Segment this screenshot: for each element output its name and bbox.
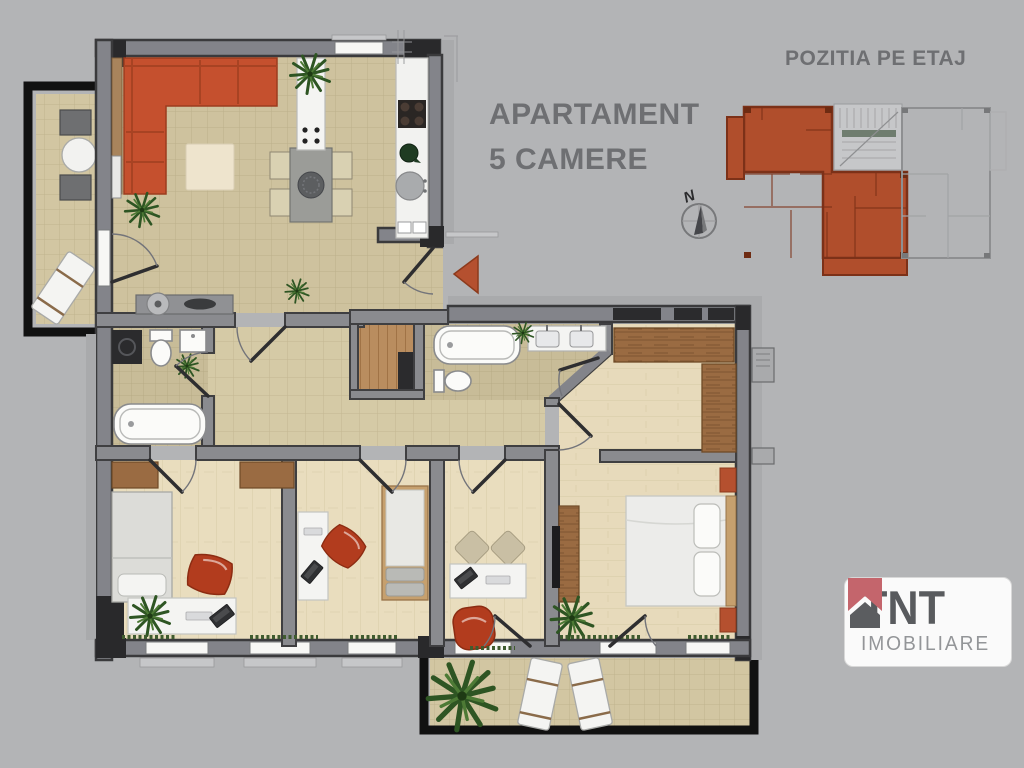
kitchen-counter: [396, 58, 428, 238]
minimap-neighbor-unit: [902, 108, 1006, 258]
toilet: [150, 330, 172, 366]
bed: [112, 492, 172, 602]
balcony-chair: [60, 110, 91, 135]
title-line-2: 5 CAMERE: [489, 137, 700, 182]
desk: [298, 512, 328, 600]
balcony-door-opening: [98, 230, 110, 286]
rug: [186, 144, 234, 190]
dressing-window: [708, 308, 734, 320]
closet-appliance: [398, 352, 415, 392]
wardrobe: [702, 364, 736, 452]
floor-position-map: [727, 104, 1006, 275]
desk: [450, 564, 526, 598]
desk: [128, 597, 236, 636]
balcony-chair: [60, 175, 91, 200]
balcony-table: [62, 138, 96, 172]
kettle: [400, 144, 418, 162]
pouf: [451, 604, 496, 651]
entrance-marker-icon: [454, 256, 478, 293]
kitchen-window: [335, 42, 383, 54]
dressing-window: [674, 308, 702, 320]
dressing-window: [613, 308, 661, 320]
logo-subtitle-text: IMOBILIARE: [861, 633, 993, 656]
stairwell: [834, 104, 902, 170]
compass: N: [681, 186, 716, 238]
bathroom1-sink: [180, 330, 206, 352]
bed: [382, 486, 428, 600]
kitchen-sink: [396, 172, 424, 200]
agency-logo: TNT IMOBILIARE: [844, 577, 1012, 667]
washing-machine: [112, 330, 142, 364]
bathtub: [114, 404, 206, 444]
master-window: [686, 642, 730, 654]
tv-cabinet: [559, 506, 579, 602]
nightstand: [720, 608, 736, 632]
bedroom2-window: [250, 642, 310, 654]
tv: [112, 156, 121, 198]
toilet: [434, 370, 471, 392]
bedroom1-window: [146, 642, 208, 654]
master-balcony-door: [600, 642, 656, 654]
balcony-left: [28, 86, 100, 332]
title-line-1: APARTAMENT: [489, 92, 700, 137]
wardrobe: [614, 328, 734, 362]
tv: [552, 526, 560, 588]
balcony-bottom: [424, 652, 754, 731]
bathtub: [434, 326, 520, 364]
page-title: APARTAMENT 5 CAMERE: [489, 92, 700, 182]
minimap-label: POZITIA PE ETAJ: [785, 47, 966, 71]
double-vanity: [528, 325, 606, 351]
floor-plan-image: N APARTAMENT 5 CAMERE POZITIA PE ETAJ TN…: [0, 0, 1024, 768]
nightstand: [720, 468, 736, 492]
bedroom2-window: [348, 642, 396, 654]
